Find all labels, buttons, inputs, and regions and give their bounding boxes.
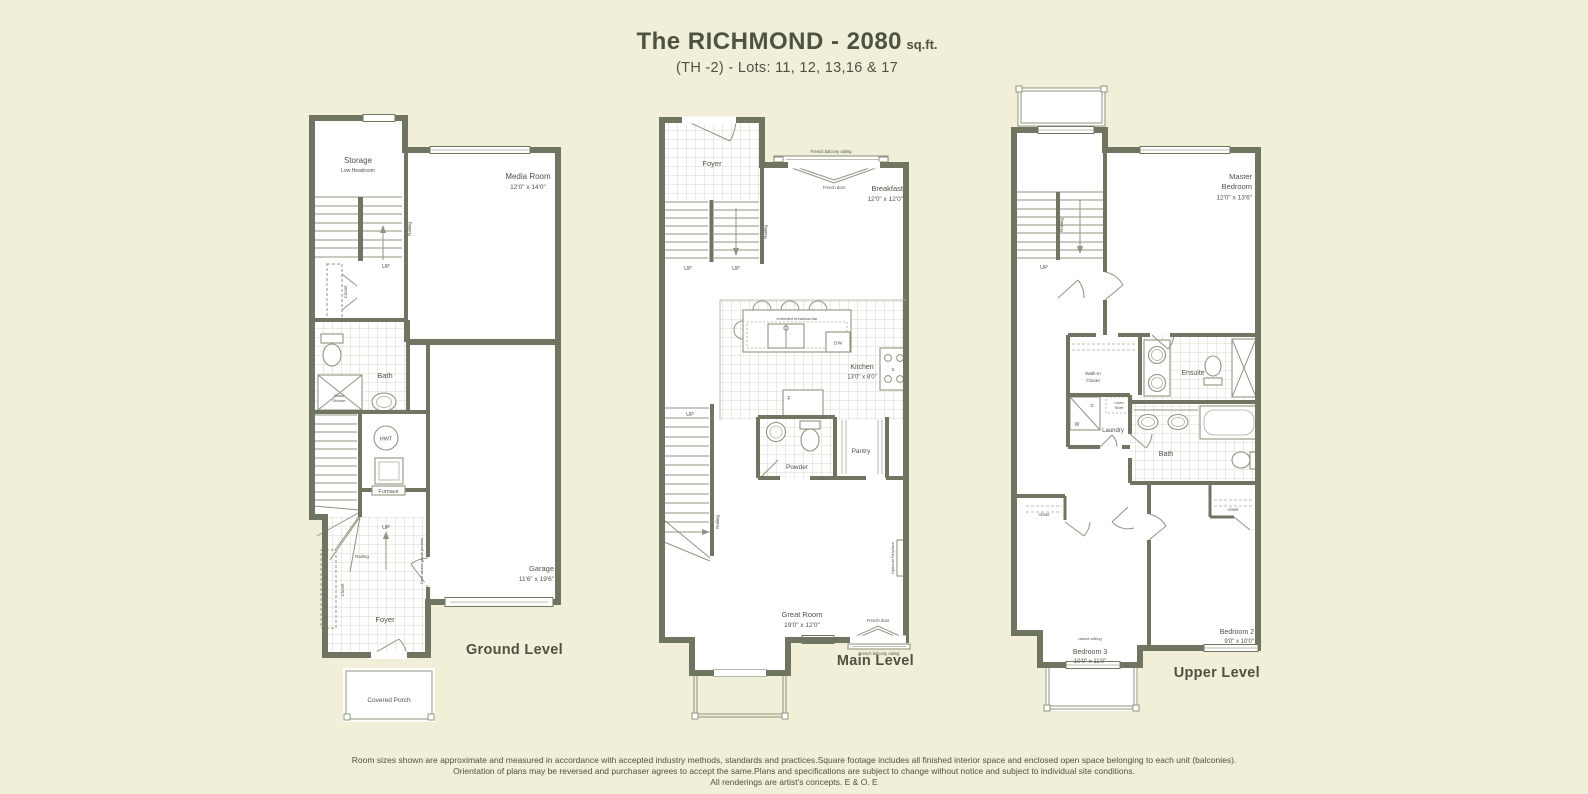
upper-level-caption: Upper Level: [1174, 665, 1260, 681]
ground-stair-rail: [358, 197, 363, 261]
garage-side-door-opening: [425, 559, 432, 585]
disclaimer-line-1: Room sizes shown are approximate and mea…: [0, 755, 1588, 766]
front-door-gap: [371, 652, 407, 659]
upper-railing-label: Railing: [1059, 218, 1064, 232]
powder-sink: [767, 423, 786, 442]
upper-balcony-top-floor: [1018, 88, 1105, 126]
floorplan-sheet: The RICHMOND - 2080 sq.ft. (TH -2) - Lot…: [0, 0, 1588, 794]
furnace-unit: [375, 458, 403, 484]
bedroom3-label: Bedroom 3: [1073, 649, 1107, 656]
master-door-opening: [1102, 272, 1109, 300]
upper-balcony-door: [1038, 127, 1094, 134]
bedroom3-closet-label: closet: [1039, 512, 1051, 517]
optional-fireplace-label: Optional Fireplace: [890, 541, 895, 574]
main-up-c: UP: [686, 412, 694, 418]
french-door-top-label: French door: [823, 185, 846, 190]
media-room-dims: 12'0" x 14'0": [510, 184, 546, 191]
bedroom2-label: Bedroom 2: [1220, 629, 1254, 636]
bedroom2-window: [1204, 645, 1258, 652]
ground-toilet: [321, 334, 343, 366]
ensuite-vanity: [1144, 340, 1170, 396]
kitchen-label: Kitchen: [850, 364, 873, 371]
ground-railing-upper: Railing: [407, 222, 412, 236]
garage-label: Garage: [529, 564, 554, 573]
bedroom2-dims: 9'0" x 10'0": [1224, 639, 1254, 645]
stove-label: S: [891, 367, 894, 372]
washer-label: W: [1075, 422, 1080, 428]
laundry-label: Laundry: [1102, 428, 1124, 434]
upper-level-plan: UP Railing Master Bedroom 12'0" x 13'6" …: [1000, 82, 1275, 732]
entry-gap: [682, 117, 736, 124]
balcony-gap: [714, 670, 766, 677]
furnace-label: Furnace: [378, 489, 398, 495]
main-railing-b: Railing: [715, 515, 720, 529]
ensuite-label: Ensuite: [1181, 370, 1204, 377]
upper-balcony-bottom-floor: [1045, 665, 1138, 711]
ground-level-plan: Storage Low Headroom Media Room 12'0" x …: [305, 112, 575, 732]
raised-ceiling-label: raised ceiling: [1078, 636, 1101, 641]
main-level-drawing: Foyer UP UP Railing French balcony raili…: [650, 112, 925, 737]
bedroom3-dims: 10'0" x 11'0": [1074, 659, 1106, 665]
upper-up-label: UP: [1040, 265, 1048, 271]
french-balcony-railing-top-label: French balcony railing: [811, 149, 853, 154]
great-room-label: Great Room: [782, 610, 823, 619]
kitchen-dims: 13'0" x 8'0": [847, 375, 877, 381]
main-up-b: UP: [732, 266, 740, 272]
title-block: The RICHMOND - 2080 sq.ft. (TH -2) - Lot…: [487, 28, 1087, 76]
storage-note: Low Headroom: [341, 168, 375, 174]
upper-level-drawing: UP Railing Master Bedroom 12'0" x 13'6" …: [1000, 82, 1275, 732]
ensuite-toilet: [1204, 356, 1222, 385]
bath-toilet: [1232, 452, 1258, 469]
main-balcony: [692, 673, 788, 719]
great-room-dims: 19'0" x 12'0": [784, 622, 820, 629]
ground-closet-lower-label: Closet: [340, 583, 345, 597]
glass-shower-label-2: Shower: [332, 398, 346, 403]
fridge-label: F: [787, 396, 790, 402]
french-top-gap: [788, 162, 880, 169]
bedroom2-closet-label: closet: [1228, 507, 1240, 512]
dw-label: DW: [834, 341, 842, 347]
extended-breakfast-bar-label: extended breakfast bar: [777, 316, 819, 321]
ground-railing-lower: Railing: [355, 554, 369, 559]
powder-toilet: [800, 421, 820, 451]
ground-up-upper: UP: [382, 264, 390, 270]
ground-level-caption: Ground Level: [466, 642, 563, 658]
storage-opening: [363, 115, 395, 122]
garage-dims: 11'6" x 19'6": [519, 576, 555, 583]
main-level-caption: Main Level: [837, 653, 914, 669]
pantry-label: Pantry: [852, 448, 872, 455]
walk-in-label-2: Closet: [1086, 378, 1100, 384]
media-room-label: Media Room: [505, 172, 551, 181]
foyer-label-ground: Foyer: [375, 615, 395, 624]
island-sink: [768, 324, 804, 348]
powder-label: Powder: [786, 464, 809, 471]
disclaimer-line-2: Orientation of plans may be reversed and…: [0, 766, 1588, 777]
covered-porch-floor: [343, 668, 435, 722]
ground-up-lower: UP: [382, 525, 390, 531]
ground-level-drawing: Storage Low Headroom Media Room 12'0" x …: [305, 112, 575, 732]
main-railing-a: Railing: [763, 225, 768, 239]
disclaimer-line-3: All renderings are artist's concepts. E …: [0, 777, 1588, 788]
main-level-plan: Foyer UP UP Railing French balcony raili…: [650, 112, 925, 737]
bathtub: [1200, 406, 1258, 439]
breakfast-dims: 12'0" x 12'0": [867, 196, 903, 203]
master-label-1: Master: [1229, 172, 1252, 181]
french-door-bottom-label: French door: [867, 618, 890, 623]
great-room-stair-rail: [710, 404, 714, 556]
upper-bath-label: Bath: [1159, 451, 1174, 458]
main-up-a: UP: [684, 266, 692, 272]
ground-closet-upper-label: Closet: [343, 285, 348, 299]
ensuite-shower: [1232, 339, 1256, 397]
walk-in-label-1: Walk-in: [1085, 371, 1101, 377]
master-window: [1140, 147, 1230, 154]
linen-label-1: Linen: [1114, 401, 1123, 405]
fridge: [783, 390, 823, 418]
plan-title-unit: sq.ft.: [906, 37, 937, 52]
hwt-label: HWT: [380, 437, 393, 443]
main-stair-rail: [710, 200, 714, 262]
media-room-window: [430, 147, 530, 154]
foyer-label-main: Foyer: [702, 159, 722, 168]
storage-label: Storage: [344, 156, 373, 165]
bath-label: Bath: [377, 371, 392, 380]
french-balcony-bottom: [848, 644, 910, 649]
master-dims: 12'0" x 13'6": [1216, 195, 1252, 202]
plan-title: The RICHMOND - 2080: [636, 28, 902, 55]
door-grade-note: Door where grade permits: [419, 538, 424, 584]
linen-label-2: Shelf: [1115, 406, 1125, 410]
ground-bath-sink: [372, 393, 396, 411]
french-bottom-gap: [850, 636, 906, 644]
disclaimer: Room sizes shown are approximate and mea…: [0, 755, 1588, 788]
master-label-2: Bedroom: [1222, 182, 1252, 191]
plan-subtitle: (TH -2) - Lots: 11, 12, 13,16 & 17: [487, 60, 1087, 76]
garage-door: [445, 598, 553, 607]
breakfast-label: Breakfast: [871, 184, 904, 193]
covered-porch-label: Covered Porch: [367, 697, 411, 704]
